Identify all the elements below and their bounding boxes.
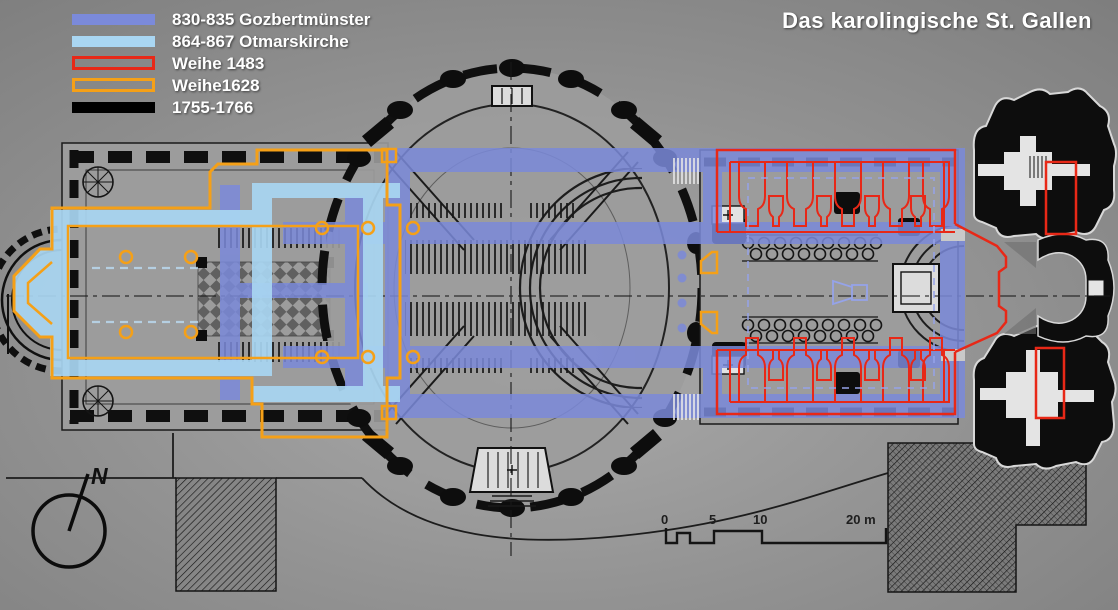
scale-label-20m: 20 m [846,512,876,527]
scale-label-5: 5 [709,512,716,527]
legend-swatch-red-outline [72,56,155,70]
legend-label: 864-867 Otmarskirche [172,33,349,50]
column-dot [678,299,687,308]
column-dot [678,324,687,333]
legend-label: Weihe1628 [172,77,260,94]
legend-swatch-lightblue [72,36,155,47]
column-dot [678,251,687,260]
scale-bar: 0 5 10 20 m [661,512,886,543]
scale-label-10: 10 [753,512,767,527]
map-canvas: 0 5 10 20 m N Das karolingische St. Gall… [0,0,1118,610]
legend-label: 1755-1766 [172,99,253,116]
legend-label: 830-835 Gozbertmünster [172,11,370,28]
high-altar [893,264,939,312]
legend-swatch-orange-outline [72,78,155,92]
legend-swatch-blue [72,14,155,25]
legend-item-weihe-1628: Weihe1628 [72,79,370,91]
legend-item-weihe-1483: Weihe 1483 [72,57,370,69]
hatch-block-southwest [176,478,276,591]
legend-label: Weihe 1483 [172,55,264,72]
legend: 830-835 Gozbertmünster 864-867 Otmarskir… [72,13,370,123]
compass-needle [69,474,88,531]
south-tower [974,324,1116,468]
compass-north-label: N [91,463,108,489]
spiral-stair-south [83,386,113,416]
legend-item-otmarskirche: 864-867 Otmarskirche [72,35,370,47]
spiral-stair-north [83,167,113,197]
legend-item-gozbertmuenster: 830-835 Gozbertmünster [72,13,370,25]
page-title: Das karolingische St. Gallen [782,8,1092,34]
central-east-apse [1004,234,1114,342]
east-towers [974,88,1116,468]
north-portal [492,86,532,106]
column-dot [678,274,687,283]
legend-item-1755-1766: 1755-1766 [72,101,370,113]
scale-label-0: 0 [661,512,668,527]
legend-swatch-black [72,102,155,113]
